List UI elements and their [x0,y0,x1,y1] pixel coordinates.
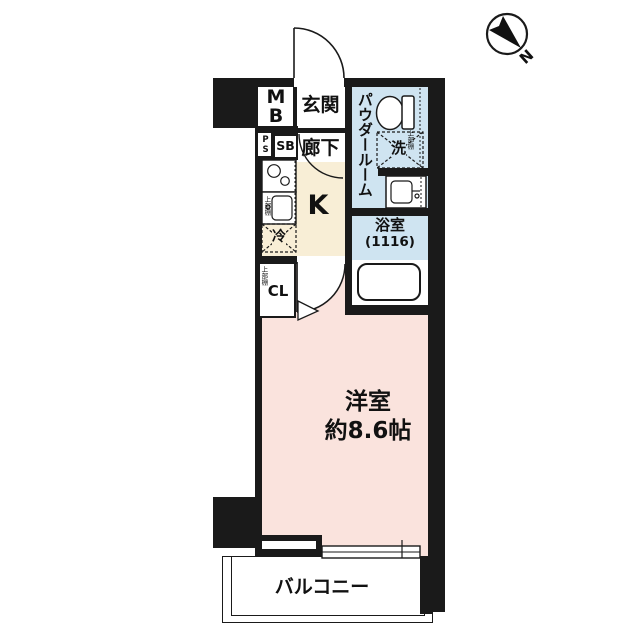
main-room-label: 洋室 [323,390,413,414]
powder-room-label: パウダールーム [356,92,372,206]
stove-icon [262,160,296,192]
pipe-space-label: PS [260,135,271,155]
bathroom-size-note: (1116) [352,235,428,249]
sliding-window [322,540,420,558]
corridor-label: 廊下 [297,138,344,158]
shoe-box-label: SB [275,139,296,152]
bathroom-label: 浴室 [352,218,428,234]
north-arrow-icon: N [482,9,538,69]
floor-plan: N MB 玄関 PS SB 廊下 パウダールーム 上部棚 洗 浴室 (1116)… [0,0,640,639]
kitchen-shelf-note: 上部棚 [263,196,270,222]
balcony-label: バルコニー [272,577,372,597]
meter-box-label: MB [265,88,287,126]
washbasin-icon [386,176,426,208]
kitchen-label: K [303,192,333,221]
entrance-door-arc [294,28,344,78]
closet-label: CL [262,284,294,300]
washer-label: 洗 [391,141,406,157]
fridge-label: 冷 [272,230,286,245]
toilet-icon [377,96,415,130]
powder-shelf-note: 上部棚 [406,130,413,156]
main-room-size-note: 約8.6帖 [308,419,428,443]
entrance-label: 玄関 [297,95,344,115]
bathtub-icon [358,264,420,300]
